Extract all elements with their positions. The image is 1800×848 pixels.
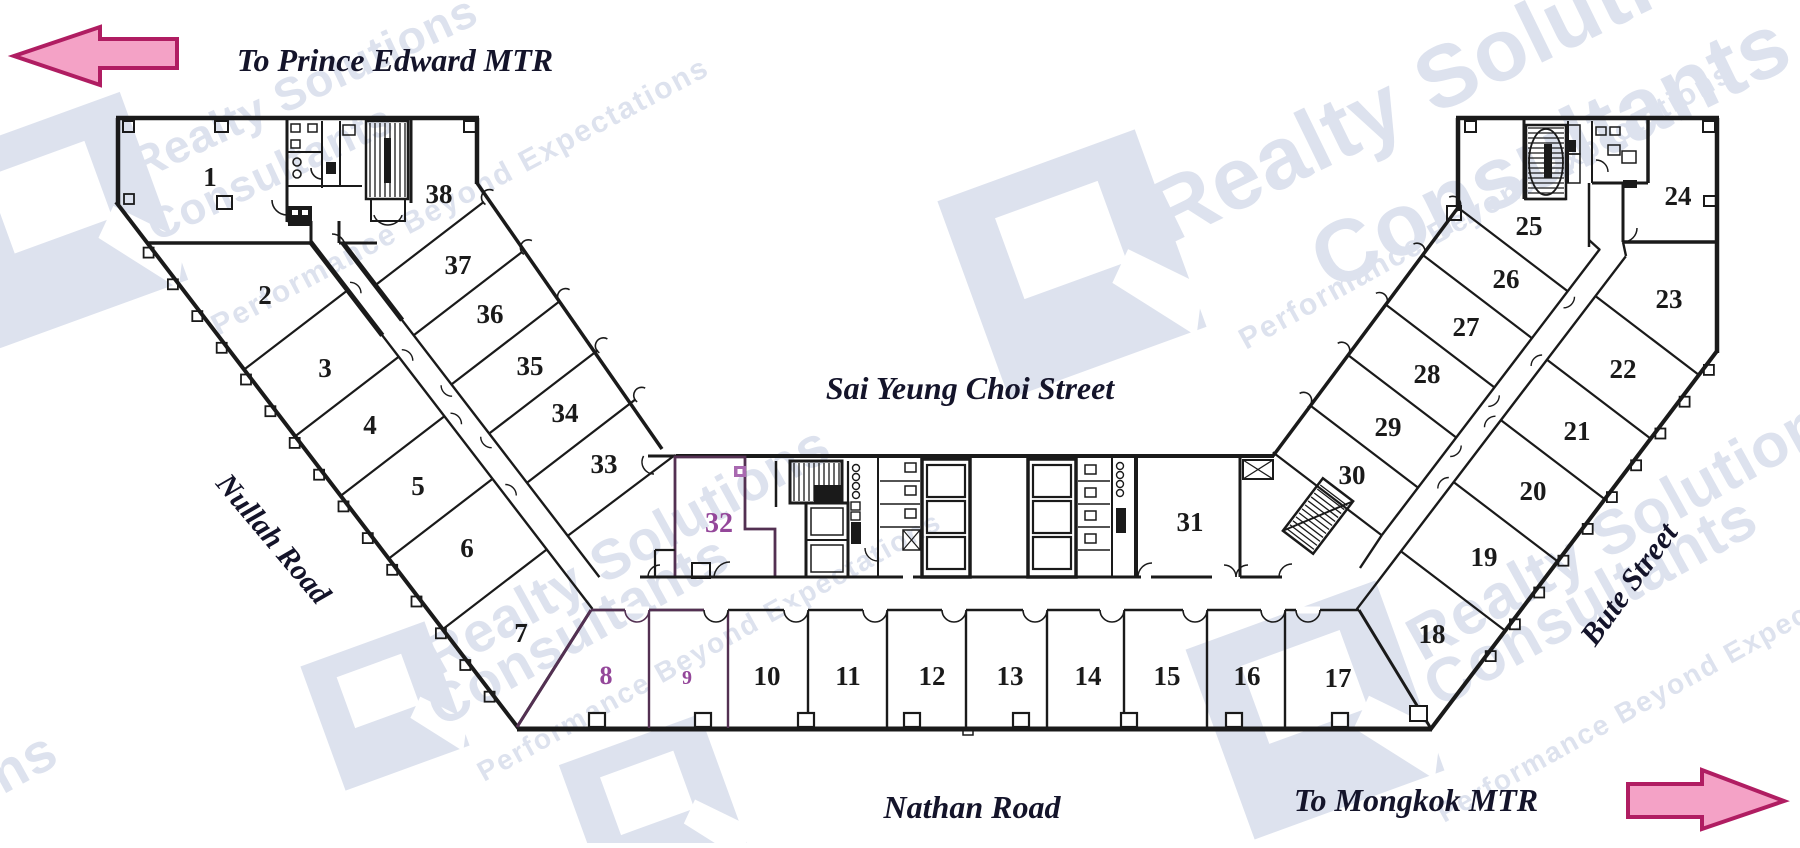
svg-text:24: 24 xyxy=(1665,181,1692,211)
svg-text:35: 35 xyxy=(517,351,544,381)
svg-text:37: 37 xyxy=(445,250,472,280)
svg-text:Sai Yeung Choi Street: Sai Yeung Choi Street xyxy=(826,370,1115,406)
svg-text:Nathan Road: Nathan Road xyxy=(883,789,1062,825)
svg-text:11: 11 xyxy=(835,661,861,691)
svg-text:22: 22 xyxy=(1610,354,1637,384)
svg-text:15: 15 xyxy=(1154,661,1181,691)
svg-text:8: 8 xyxy=(600,661,613,690)
svg-text:32: 32 xyxy=(705,508,733,539)
svg-text:23: 23 xyxy=(1656,284,1683,314)
svg-text:12: 12 xyxy=(919,661,946,691)
svg-text:34: 34 xyxy=(552,398,579,428)
svg-text:6: 6 xyxy=(460,533,474,563)
svg-text:18: 18 xyxy=(1419,619,1446,649)
svg-text:4: 4 xyxy=(363,410,377,440)
svg-text:2: 2 xyxy=(258,280,272,310)
svg-text:29: 29 xyxy=(1375,412,1402,442)
svg-text:28: 28 xyxy=(1414,359,1441,389)
svg-text:9: 9 xyxy=(682,667,692,689)
svg-text:5: 5 xyxy=(411,471,425,501)
svg-text:7: 7 xyxy=(514,618,528,648)
svg-text:36: 36 xyxy=(477,299,504,329)
svg-text:27: 27 xyxy=(1453,312,1480,342)
svg-text:10: 10 xyxy=(754,661,781,691)
svg-text:To Prince Edward MTR: To Prince Edward MTR xyxy=(237,42,553,78)
svg-text:13: 13 xyxy=(997,661,1024,691)
svg-text:17: 17 xyxy=(1325,663,1352,693)
svg-text:To Mongkok MTR: To Mongkok MTR xyxy=(1294,782,1538,818)
svg-text:3: 3 xyxy=(318,353,332,383)
svg-text:30: 30 xyxy=(1339,460,1366,490)
svg-text:20: 20 xyxy=(1520,476,1547,506)
svg-text:25: 25 xyxy=(1516,211,1543,241)
svg-text:16: 16 xyxy=(1234,661,1261,691)
svg-text:21: 21 xyxy=(1564,416,1591,446)
svg-text:31: 31 xyxy=(1177,507,1204,537)
svg-text:33: 33 xyxy=(591,449,618,479)
svg-text:19: 19 xyxy=(1471,542,1498,572)
svg-text:14: 14 xyxy=(1075,661,1102,691)
svg-text:26: 26 xyxy=(1493,264,1520,294)
svg-text:1: 1 xyxy=(203,162,217,192)
svg-text:38: 38 xyxy=(426,179,453,209)
